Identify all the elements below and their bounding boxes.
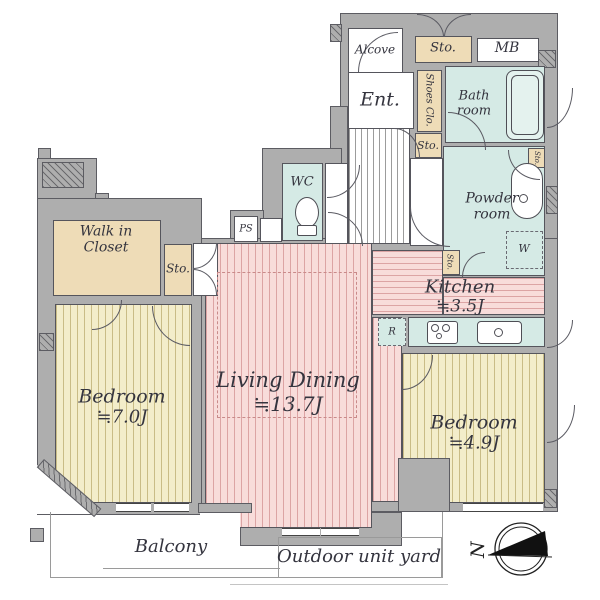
toilet-icon: [295, 197, 319, 228]
window: [321, 528, 359, 536]
window: [463, 503, 543, 512]
bathroom-label: Bath room: [451, 89, 497, 118]
compass: N: [462, 514, 568, 586]
washer-label: W: [518, 243, 529, 255]
storage-wic-label: Sto.: [166, 262, 190, 275]
storage-top-label: Sto.: [430, 42, 456, 57]
bedroom-right-label: Bedroom ≒4.9J: [430, 412, 517, 453]
storage-powder-label: Sto.: [532, 151, 540, 165]
wall-hatch: [39, 333, 54, 351]
wall-hatch: [42, 162, 84, 188]
wc-label: WC: [290, 176, 313, 191]
outer-line: [230, 584, 448, 585]
bedroom-left-size: ≒7.0J: [78, 408, 165, 428]
window: [116, 503, 151, 512]
kitchen-label: Kitchen ≒3.5J: [425, 277, 495, 316]
pipe-space-label: PS: [239, 223, 253, 234]
living-dining-label: Living Dining ≒13.7J: [216, 369, 360, 415]
door-arc-exterior-kitchen: [547, 320, 573, 348]
bedroom-right-name: Bedroom: [430, 412, 517, 433]
living-dining-size: ≒13.7J: [216, 393, 360, 415]
wall-block: [30, 528, 44, 542]
living-dining-name: Living Dining: [216, 369, 360, 393]
window: [282, 528, 320, 536]
compass-needle-icon: [488, 531, 548, 556]
walk-in-closet-label: Walk in Closet: [67, 224, 145, 255]
door-arc-exterior-bedroom: [547, 405, 575, 443]
outdoor-unit-yard-label: Outdoor unit yard: [277, 547, 441, 567]
door-arc-exterior-bath: [547, 88, 573, 128]
bedroom-right-size: ≒4.9J: [430, 434, 517, 454]
compass-north-label: N: [467, 540, 489, 559]
fridge-label: R: [388, 326, 396, 337]
wall-hatch: [546, 186, 558, 214]
kitchen-size: ≒3.5J: [425, 298, 495, 317]
wall-block: [330, 24, 342, 42]
bedroom-left-label: Bedroom ≒7.0J: [78, 386, 165, 427]
toilet-tank: [297, 225, 317, 236]
powder-room-label: Powder room: [462, 191, 522, 222]
alcove-label: Alcove: [355, 43, 395, 56]
entrance-label: Ent.: [360, 89, 400, 110]
room-ps-closet: [260, 218, 282, 242]
window: [154, 503, 189, 512]
wall-notch: [398, 458, 450, 512]
stove-burner: [442, 324, 450, 332]
yard-line: [442, 512, 443, 578]
shoes-closet-label: Shoes Clo.: [423, 73, 434, 126]
wall-hatch: [544, 489, 557, 508]
meter-box-label: MB: [495, 41, 520, 57]
stove-burner: [436, 333, 442, 339]
storage-hall-label: Sto.: [417, 140, 439, 152]
sink-drain: [494, 328, 503, 337]
balcony-line: [103, 568, 280, 569]
bedroom-left-name: Bedroom: [78, 386, 165, 407]
storage-kitchen-label: Sto.: [445, 254, 454, 270]
bathtub-inner: [511, 75, 539, 135]
kitchen-name: Kitchen: [425, 277, 495, 297]
stove-burner: [431, 324, 439, 332]
balcony-label: Balcony: [135, 537, 207, 557]
floor-plan: N Alcove Sto. MB Ent. Shoes Clo. Bath ro…: [0, 0, 600, 600]
